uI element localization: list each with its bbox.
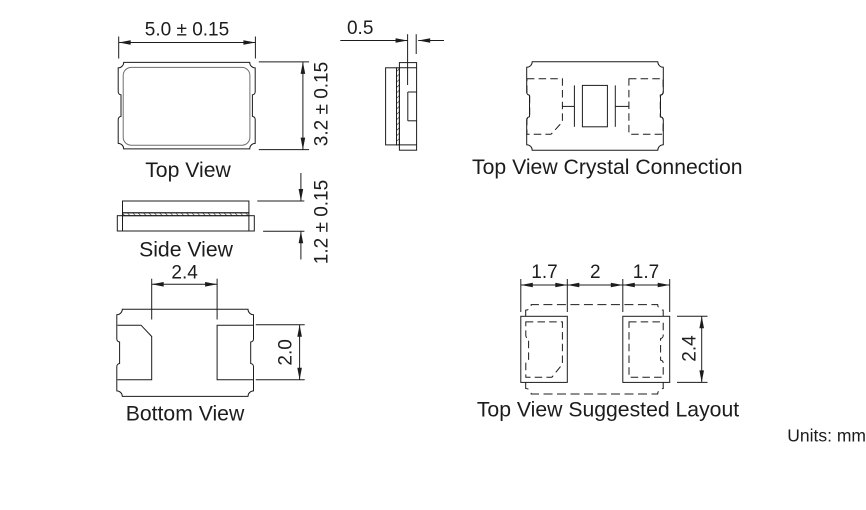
- svg-text:Top View: Top View: [145, 159, 231, 182]
- svg-text:Top View Crystal Connection: Top View Crystal Connection: [472, 156, 742, 179]
- svg-text:2.4: 2.4: [680, 335, 701, 362]
- svg-text:Side View: Side View: [139, 238, 234, 261]
- svg-text:5.0 ± 0.15: 5.0 ± 0.15: [145, 20, 229, 41]
- svg-text:3.2 ± 0.15: 3.2 ± 0.15: [312, 62, 333, 146]
- svg-text:Bottom View: Bottom View: [126, 403, 245, 426]
- svg-text:2.4: 2.4: [171, 262, 198, 283]
- svg-text:2: 2: [590, 262, 601, 283]
- svg-text:Units: mm: Units: mm: [787, 425, 866, 445]
- svg-text:1.2 ± 0.15: 1.2 ± 0.15: [312, 180, 333, 264]
- svg-text:1.7: 1.7: [633, 262, 659, 283]
- svg-text:1.7: 1.7: [531, 262, 557, 283]
- svg-text:Top View Suggested Layout: Top View Suggested Layout: [477, 399, 739, 422]
- svg-text:2.0: 2.0: [276, 339, 297, 365]
- svg-text:0.5: 0.5: [347, 18, 373, 39]
